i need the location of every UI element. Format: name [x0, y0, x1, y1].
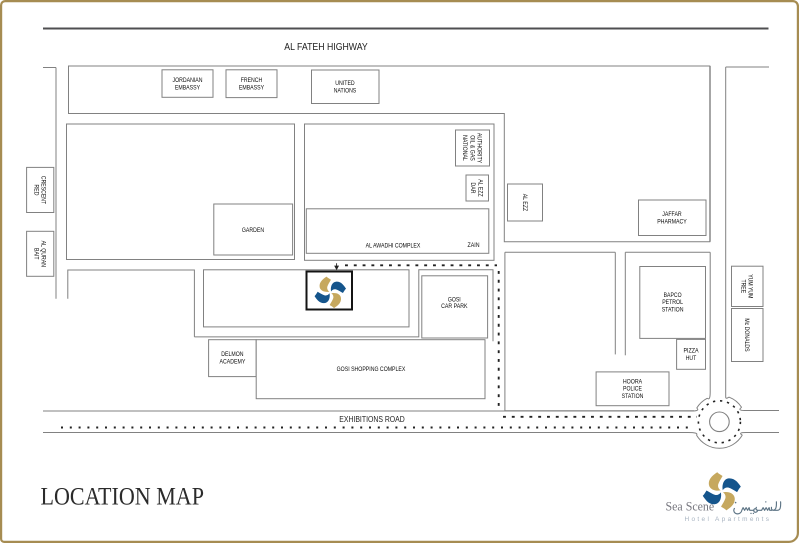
svg-text:PHARMACY: PHARMACY — [657, 218, 687, 225]
svg-text:STATION: STATION — [622, 393, 644, 400]
svg-text:DELMON: DELMON — [221, 351, 244, 358]
svg-text:AUTHORITY: AUTHORITY — [475, 133, 482, 164]
svg-text:JORDANIAN: JORDANIAN — [173, 77, 203, 84]
svg-text:NATIONAL: NATIONAL — [461, 135, 468, 161]
svg-text:GOSI SHOPPING COMPLEX: GOSI SHOPPING COMPLEX — [337, 366, 406, 373]
svg-text:CRESCENT: CRESCENT — [40, 176, 47, 204]
svg-text:PETROL: PETROL — [662, 299, 683, 306]
svg-text:ZAIN: ZAIN — [468, 242, 480, 249]
svg-text:Sea Scene: Sea Scene — [666, 500, 715, 514]
svg-text:NATIONS: NATIONS — [334, 87, 357, 94]
svg-text:AL FATEH HIGHWAY: AL FATEH HIGHWAY — [284, 41, 368, 53]
svg-text:STATION: STATION — [662, 306, 684, 313]
svg-text:POLICE: POLICE — [623, 386, 642, 393]
svg-text:JAFFAR: JAFFAR — [662, 211, 682, 218]
svg-text:Hotel Apartments: Hotel Apartments — [685, 516, 770, 523]
svg-text:FRENCH: FRENCH — [241, 77, 263, 84]
svg-text:ACADEMY: ACADEMY — [220, 358, 246, 365]
svg-text:BAIT: BAIT — [32, 248, 39, 260]
svg-text:AL AWADHI COMPLEX: AL AWADHI COMPLEX — [366, 243, 421, 250]
svg-text:LOCATION MAP: LOCATION MAP — [41, 484, 205, 511]
svg-text:EMBASSY: EMBASSY — [239, 84, 265, 91]
svg-text:UNITED: UNITED — [335, 80, 355, 87]
svg-text:HOORA: HOORA — [623, 379, 643, 386]
svg-text:TREE: TREE — [739, 279, 746, 293]
svg-text:GARDEN: GARDEN — [242, 227, 265, 234]
svg-text:OIL & GAS: OIL & GAS — [468, 135, 475, 161]
svg-text:AL QURAN: AL QURAN — [40, 241, 47, 268]
svg-text:AL EZZ: AL EZZ — [521, 194, 528, 212]
svg-text:CAR PARK: CAR PARK — [441, 303, 468, 310]
svg-text:BAPCO: BAPCO — [664, 292, 682, 299]
svg-text:RED: RED — [32, 185, 39, 196]
svg-text:YUM YUM: YUM YUM — [747, 274, 754, 298]
svg-text:AL EZZ: AL EZZ — [476, 179, 483, 197]
svg-text:EMBASSY: EMBASSY — [175, 84, 201, 91]
svg-text:DAR: DAR — [469, 183, 476, 194]
svg-text:EXHIBITIONS ROAD: EXHIBITIONS ROAD — [339, 415, 405, 424]
svg-text:PIZZA: PIZZA — [683, 348, 699, 355]
svg-text:Mc DONALDS: Mc DONALDS — [743, 318, 750, 351]
svg-text:HUT: HUT — [686, 355, 697, 362]
